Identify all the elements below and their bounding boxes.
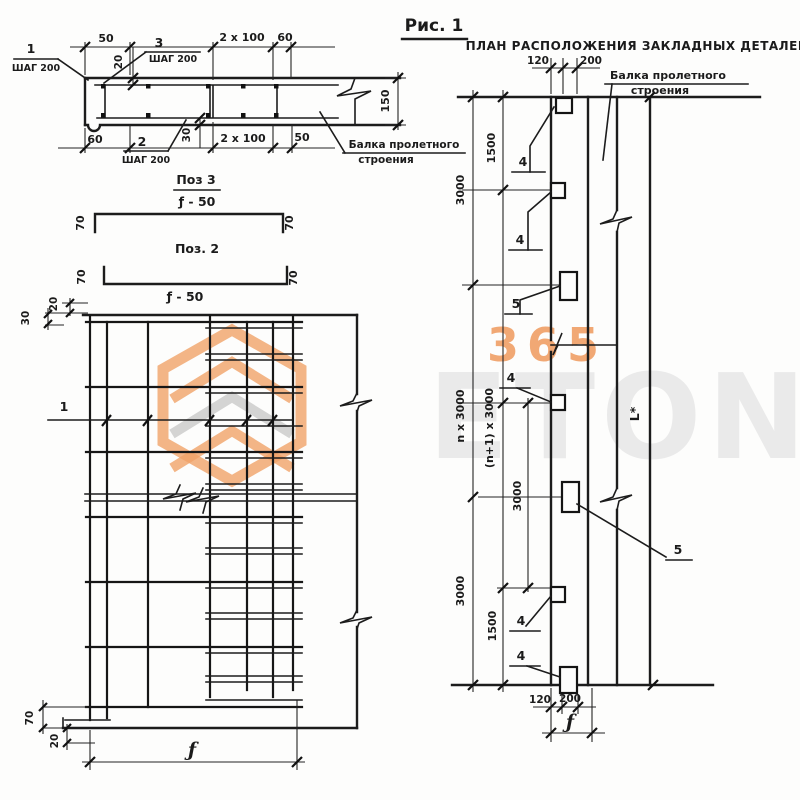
svg-text:4: 4 — [519, 154, 528, 169]
plan-dim-120-bot: 120 — [529, 694, 551, 706]
svg-text:4: 4 — [507, 370, 516, 385]
dim-2x100-bot: 2 x 100 — [220, 132, 266, 145]
dim-150: 150 — [379, 89, 392, 112]
chain-1500-bot: 1500 — [486, 610, 499, 641]
pos3-sub: ƒ - 50 — [178, 194, 216, 209]
svg-text:2: 2 — [138, 134, 147, 149]
pos3-title: Поз 3 — [176, 172, 215, 187]
plan-dim-120-top: 120 — [527, 55, 549, 67]
bar-step-1: ШАГ 200 — [12, 63, 61, 74]
embedded-plate — [551, 183, 565, 198]
bar-step-3: ШАГ 200 — [149, 54, 198, 65]
chain-1500-top: 1500 — [485, 132, 498, 163]
chain-3000-mid: 3000 — [511, 480, 524, 511]
mesh-dim-20-bot: 20 — [49, 734, 61, 749]
plate-mark-4: 4 — [509, 192, 551, 250]
dim-60-bot: 60 — [87, 133, 103, 146]
plan-dim-f: ƒ — [562, 711, 577, 733]
embedded-plate — [551, 395, 565, 410]
pos2-dim-70-left: 70 — [75, 269, 88, 285]
chain-n-3000: n x 3000 — [454, 389, 467, 443]
svg-text:3: 3 — [155, 35, 164, 50]
mesh-dim-30-top: 30 — [20, 311, 32, 326]
section-view: 50 2 x 100 60 20 3 ШАГ 200 1 ШАГ 200 60 … — [12, 31, 465, 166]
svg-text:4: 4 — [517, 613, 526, 628]
section-beam-callout: Балка пролетного строения — [320, 112, 465, 166]
pos2-detail: Поз. 2 70 70 ƒ - 50 — [75, 241, 300, 304]
chain-3000-bot: 3000 — [454, 575, 467, 606]
plan-dim-200-top: 200 — [580, 55, 602, 67]
svg-text:4: 4 — [517, 648, 526, 663]
svg-text:строения: строения — [631, 84, 689, 97]
svg-text:Балка пролетного: Балка пролетного — [349, 139, 460, 151]
chain-3000-top: 3000 — [454, 174, 467, 205]
dim-50-bot: 50 — [294, 131, 310, 144]
embedded-plate — [560, 272, 577, 300]
pos2-title: Поз. 2 — [175, 241, 219, 256]
mesh-view: 1 20 30 70 20 ƒ — [20, 297, 372, 770]
svg-text:5: 5 — [512, 296, 521, 311]
bar-step-2: ШАГ 200 — [122, 155, 171, 166]
drawing-layer: 50 2 x 100 60 20 3 ШАГ 200 1 ШАГ 200 60 … — [0, 0, 800, 800]
plate-mark-4: 4 — [512, 107, 554, 172]
plate-mark-4: 4 — [510, 596, 551, 631]
svg-text:4: 4 — [516, 232, 525, 247]
embedded-plate — [562, 482, 579, 512]
svg-text:Балка пролетного: Балка пролетного — [610, 69, 726, 82]
chain-n1-3000: (n+1) x 3000 — [483, 388, 496, 468]
svg-text:1: 1 — [60, 399, 69, 414]
plan-dim-200-bot: 200 — [559, 693, 581, 705]
svg-text:строения: строения — [358, 154, 414, 166]
dim-20: 20 — [113, 55, 125, 70]
header: Рис. 1 ПЛАН РАСПОЛОЖЕНИЯ ЗАКЛАДНЫХ ДЕТАЛ… — [402, 16, 800, 53]
dim-60-top: 60 — [277, 31, 293, 44]
plate-mark-5: 5 — [577, 504, 692, 560]
svg-text:5: 5 — [674, 542, 683, 557]
plan-beam-callout: Балка пролетного строения — [603, 69, 748, 160]
mesh-bar-mark-1: 1 — [48, 399, 292, 426]
embedded-plate — [560, 667, 577, 693]
plate-mark-4: 4 — [510, 648, 560, 677]
plate-mark-4: 4 — [500, 370, 551, 402]
dim-L-total: L* — [627, 406, 642, 421]
pos3-detail: Поз 3 ƒ - 50 70 70 — [74, 172, 296, 232]
bar-mark-2: 2 ШАГ 200 — [122, 120, 186, 166]
svg-text:1: 1 — [27, 41, 36, 56]
mesh-dim-70-bot: 70 — [24, 711, 36, 726]
plan-title: ПЛАН РАСПОЛОЖЕНИЯ ЗАКЛАДНЫХ ДЕТАЛЕЙ — [466, 38, 800, 53]
blueprint-page: 365 ETON 50 2 x 100 60 20 — [0, 0, 800, 800]
pos3-dim-70-left: 70 — [74, 215, 87, 231]
pos2-sub: ƒ - 50 — [166, 289, 204, 304]
dim-30: 30 — [181, 128, 193, 143]
pos3-dim-70-right: 70 — [283, 215, 296, 231]
dim-50-top: 50 — [98, 32, 114, 45]
embedded-plate — [556, 98, 572, 113]
plan-view: 3000 n x 3000 3000 1500 (n+1) x 3000 300… — [452, 55, 760, 742]
embedded-plate — [551, 587, 565, 602]
mesh-dim-f: ƒ — [184, 739, 199, 761]
dim-2x100-top: 2 x 100 — [219, 31, 265, 44]
pos2-dim-70-right: 70 — [287, 270, 300, 286]
mesh-dim-20-top: 20 — [48, 297, 60, 312]
figure-title: Рис. 1 — [405, 16, 464, 36]
